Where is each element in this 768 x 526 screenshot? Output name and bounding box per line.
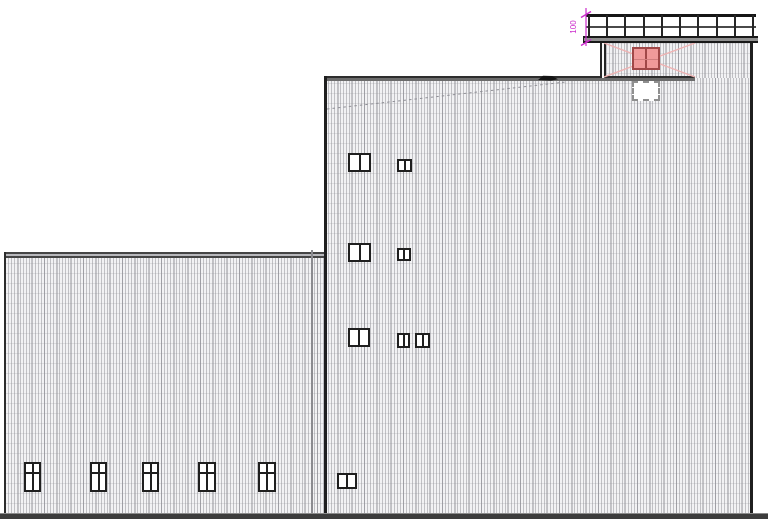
window: [397, 248, 411, 261]
guardrail-post: [679, 15, 681, 36]
guardrail-posts: [0, 0, 768, 60]
window: [337, 473, 357, 489]
window-mullion: [422, 335, 424, 346]
window: [348, 243, 371, 262]
window-transom: [26, 472, 39, 474]
guardrail-post: [752, 15, 754, 36]
window-mullion: [403, 250, 405, 259]
window-mullion: [150, 464, 152, 490]
elevation-drawing: 100: [0, 0, 768, 526]
window-mullion: [98, 464, 100, 490]
dimension-label: 100: [566, 15, 582, 39]
window-transom: [144, 472, 157, 474]
window: [348, 328, 370, 347]
window-mullion: [358, 330, 360, 345]
window: [24, 462, 41, 492]
window-transom: [92, 472, 105, 474]
window: [142, 462, 159, 492]
guardrail-post: [606, 15, 608, 36]
window: [258, 462, 276, 492]
guardrail-post: [697, 15, 699, 36]
window: [415, 333, 430, 348]
dashed-opening-outline: [632, 81, 660, 101]
window-mullion: [403, 335, 405, 346]
guardrail-post: [661, 15, 663, 36]
window: [397, 159, 412, 172]
window-transom: [200, 472, 214, 474]
window-mullion: [32, 464, 34, 490]
window: [198, 462, 216, 492]
window-mullion: [359, 155, 361, 170]
window: [90, 462, 107, 492]
window-mullion: [404, 161, 406, 170]
guardrail-post: [716, 15, 718, 36]
guardrail-post: [734, 15, 736, 36]
guardrail-post: [588, 15, 590, 36]
ground-line: [0, 513, 768, 519]
window: [348, 153, 371, 172]
window-mullion: [266, 464, 268, 490]
window: [397, 333, 410, 348]
guardrail-post: [624, 15, 626, 36]
guardrail-post: [643, 15, 645, 36]
window-mullion: [359, 245, 361, 260]
windows-layer: [0, 0, 768, 526]
window-mullion: [346, 475, 348, 487]
window-mullion: [206, 464, 208, 490]
window-transom: [260, 472, 274, 474]
